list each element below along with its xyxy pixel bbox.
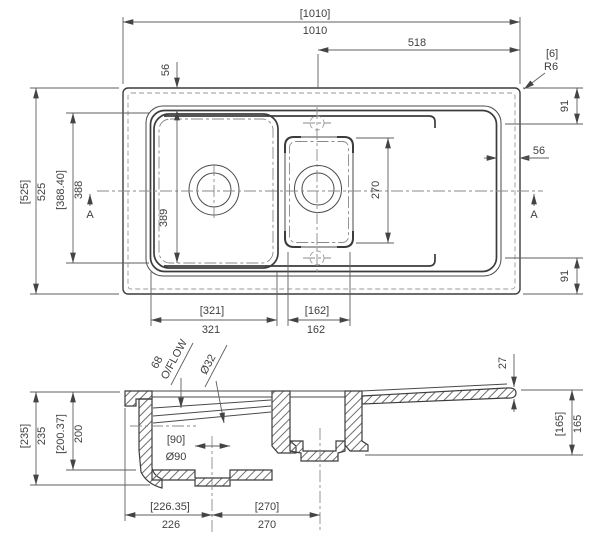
dim-rim-thickness: 27	[497, 354, 514, 412]
dim-text-aux: [1010]	[300, 8, 331, 20]
dim-bowl-centre-spacing: [270] 270	[212, 501, 320, 531]
dim-text: 165	[572, 415, 584, 433]
dim-bowl-outer-depth: [388.40] 388	[55, 113, 149, 263]
dim-text-aux: [321]	[200, 305, 224, 317]
dim-text: 388	[73, 181, 85, 199]
dim-overall-width: [1010] 1010	[123, 8, 520, 84]
dim-text: 162	[307, 324, 325, 336]
section-label: A	[86, 209, 94, 221]
dim-text: 91	[559, 270, 571, 282]
dim-text: 235	[36, 427, 48, 445]
dim-edge-inset-top: 56	[160, 62, 177, 88]
half-bowl-corner-tl	[285, 137, 301, 153]
dim-text-aux: [162]	[305, 305, 329, 317]
section-view: [235] 235 [200.37] 200 68 O/FLOW Ø32 [90…	[19, 337, 584, 532]
dim-text-aux: [235]	[19, 424, 31, 448]
dim-text: Ø90	[166, 451, 187, 463]
dim-text: 1010	[303, 25, 327, 37]
dim-text: 270	[370, 181, 382, 199]
dim-bowl-depth: [200.37] 200	[55, 392, 136, 470]
half-bowl-corner-bl	[285, 231, 301, 247]
section-marker-left: A	[86, 194, 94, 221]
drawing-sheet: [1010] 1010 518 [6] R6 56 389 56	[0, 0, 600, 538]
dim-text: 518	[408, 37, 426, 49]
half-bowl-drain-hole	[302, 173, 334, 205]
section-marker-right: A	[530, 194, 538, 221]
section-label: A	[530, 209, 538, 221]
dim-drainer-span: 518	[318, 37, 520, 88]
half-bowl-corner-br	[337, 231, 353, 247]
dim-half-bowl-depth: 270	[356, 138, 394, 243]
dim-text-aux: [200.37]	[55, 414, 67, 454]
section-half-bowl-floor	[290, 441, 345, 461]
dim-text: 525	[36, 183, 48, 201]
drainer-top-edge	[164, 116, 435, 128]
half-bowl-hidden-line	[290, 142, 349, 243]
dim-margin-top-right: 91	[505, 88, 583, 124]
callout-corner-radius: [6] R6	[524, 48, 558, 89]
dim-text-aux: [270]	[255, 501, 279, 513]
plan-view: [1010] 1010 518 [6] R6 56 389 56	[19, 8, 583, 336]
half-bowl-corner-tr	[337, 137, 353, 153]
dim-text-aux: [525]	[19, 180, 31, 204]
dim-bowl-inner-depth: 389	[158, 110, 177, 263]
callout-text-aux: [6]	[546, 48, 558, 60]
dim-text: 56	[160, 64, 172, 76]
dim-text: 389	[158, 209, 170, 227]
dim-margin-bottom-right: 91	[505, 258, 583, 294]
overflow-slot-line	[153, 412, 271, 423]
drainer-bottom-edge	[164, 254, 435, 266]
dim-text: 91	[559, 100, 571, 112]
sink-technical-drawing: [1010] 1010 518 [6] R6 56 389 56	[0, 0, 600, 538]
dim-text: 27	[497, 357, 509, 369]
dim-waste-diameter: [90] Ø90	[166, 434, 230, 463]
dim-text-aux: [388.40]	[55, 170, 67, 210]
dim-text-aux: [90]	[167, 434, 185, 446]
leader-line	[524, 73, 545, 89]
callout-text: R6	[544, 61, 558, 73]
overflow-slot-line	[153, 400, 271, 408]
dim-text: 226	[162, 519, 180, 531]
dim-bowl-width: [321] 321	[151, 272, 277, 336]
overflow-slot-line	[153, 406, 271, 416]
dim-text: 270	[258, 519, 276, 531]
dim-text-aux: [165]	[554, 412, 566, 436]
dim-text: 56	[533, 145, 545, 157]
dim-text: 200	[73, 425, 85, 443]
dim-text: 321	[202, 324, 220, 336]
half-bowl-outline	[285, 137, 353, 247]
dim-edge-inset-right: 56	[484, 145, 549, 158]
dim-text-aux: [226.35]	[150, 501, 190, 513]
callout-text: Ø32	[198, 353, 218, 377]
